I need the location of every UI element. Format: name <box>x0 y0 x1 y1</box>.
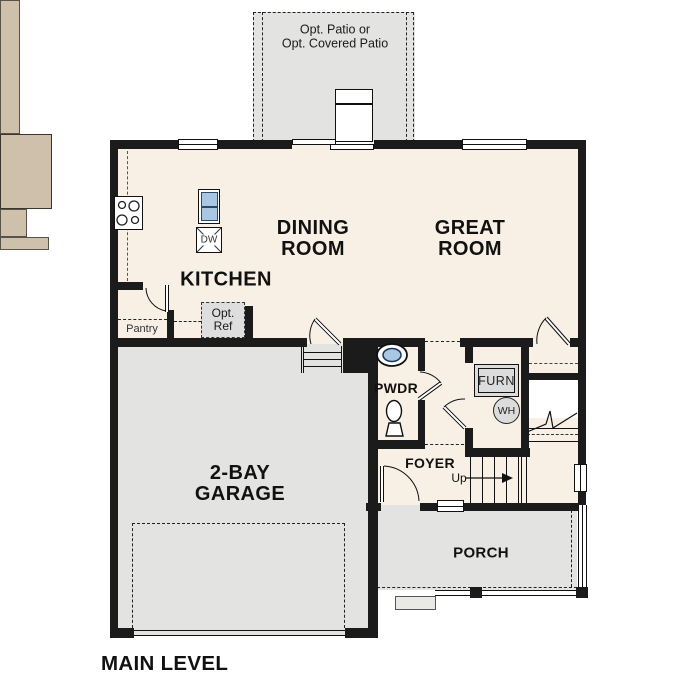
porch-railing <box>578 505 579 590</box>
porch-railing <box>582 505 583 590</box>
floor-plan: Opt. Ref FURN WH <box>0 0 687 687</box>
wall-segment <box>343 346 368 373</box>
garage-door-line <box>134 635 345 636</box>
wall-segment <box>464 503 578 511</box>
wall-segment <box>167 310 174 338</box>
great-line2: ROOM <box>435 239 506 260</box>
porch-step-line <box>435 590 588 591</box>
coat-closet-shelf <box>0 237 49 250</box>
stair-tread <box>482 457 483 503</box>
kitchen-label: KITCHEN <box>180 270 272 291</box>
kitchen-island <box>0 134 52 209</box>
dishwasher-label: DW <box>200 235 219 246</box>
wall-segment <box>465 346 473 363</box>
wall-segment <box>110 338 307 347</box>
wall-segment <box>245 306 253 338</box>
stair-stringer <box>526 457 527 504</box>
porch-label: PORCH <box>453 545 509 562</box>
garage-step-tread <box>304 352 341 353</box>
wall-segment <box>368 440 425 449</box>
dining-line1: DINING <box>277 218 349 239</box>
wall-segment <box>110 140 178 149</box>
stair-tread <box>494 457 495 503</box>
porch-post <box>576 587 588 598</box>
dining-line2: ROOM <box>277 239 349 260</box>
stair-tread-upper <box>527 428 578 429</box>
furnace-unit: FURN <box>474 364 519 397</box>
pantry-shelf-line <box>118 319 167 320</box>
foyer-label: FOYER <box>405 455 455 471</box>
pantry-label: Pantry <box>126 323 158 335</box>
window <box>178 139 218 150</box>
wall-segment <box>110 628 134 638</box>
garage-line2: GARAGE <box>195 484 285 505</box>
patio-inner-line <box>262 12 263 142</box>
furnace-label: FURN <box>478 374 515 388</box>
garage-door-line <box>134 630 345 631</box>
sink-basin <box>201 207 218 221</box>
garage-line1: 2-BAY <box>195 463 285 484</box>
closet-shelf-line <box>529 363 578 364</box>
wall-segment <box>374 140 462 149</box>
window <box>462 139 527 150</box>
opening-dash <box>425 341 460 342</box>
front-step <box>395 596 436 610</box>
stair-stringer <box>521 457 522 504</box>
stair-tread-upper <box>527 441 578 442</box>
sink-basin <box>201 192 218 207</box>
opening-dash <box>425 444 464 445</box>
garage-step-tread <box>304 359 341 360</box>
garage-step-tread <box>304 366 341 367</box>
porch-edge-dash <box>571 510 572 587</box>
window <box>574 464 587 492</box>
stair-tread <box>518 457 519 503</box>
foyer-hall-area <box>366 344 578 510</box>
powder-label: PWDR <box>374 380 418 396</box>
ref-counter <box>0 209 27 237</box>
water-heater: WH <box>493 397 520 424</box>
wall-segment <box>420 503 437 511</box>
level-title: MAIN LEVEL <box>101 652 228 676</box>
stair-tread <box>470 457 471 503</box>
great-room-label: GREAT ROOM <box>435 218 506 260</box>
opt-ref-label: Ref <box>214 320 233 333</box>
stair-dash <box>527 434 578 435</box>
porch-post <box>470 587 482 598</box>
range-stove <box>114 196 143 230</box>
fireplace <box>335 89 373 142</box>
stairwell-void <box>527 378 578 418</box>
porch-railing <box>586 505 587 590</box>
wall-segment <box>418 346 425 371</box>
sliding-door-panel <box>330 144 374 150</box>
wall-segment <box>218 140 292 149</box>
wall-segment <box>521 346 529 457</box>
patio-inner-line <box>406 12 407 142</box>
patio-label-line2: Opt. Covered Patio <box>282 37 388 51</box>
great-line1: GREAT <box>435 218 506 239</box>
wall-segment <box>465 448 530 457</box>
stair-tread <box>506 457 507 503</box>
wall-segment <box>527 373 578 380</box>
wall-segment <box>570 338 586 347</box>
patio-label: Opt. Patio or Opt. Covered Patio <box>282 24 388 51</box>
garage-label: 2-BAY GARAGE <box>195 463 285 505</box>
garage-door-outline <box>132 523 345 628</box>
sidelite-window <box>437 500 464 512</box>
up-label: Up <box>451 471 466 485</box>
patio-label-line1: Opt. Patio or <box>282 24 388 38</box>
dining-room-label: DINING ROOM <box>277 218 349 260</box>
water-heater-label: WH <box>498 405 516 417</box>
kitchen-counter <box>0 0 20 134</box>
porch-step-line <box>435 595 588 596</box>
opt-ref-box: Opt. Ref <box>201 302 245 338</box>
wall-segment <box>116 282 143 290</box>
island-sink <box>198 189 220 224</box>
wall-segment <box>578 140 586 505</box>
